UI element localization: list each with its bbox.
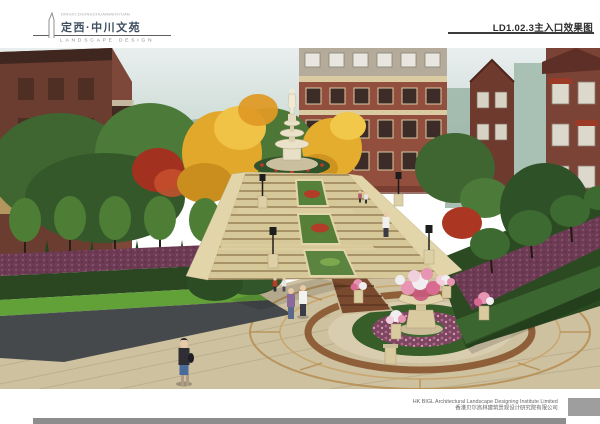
company-credit: HK BIGL Architectural Landscape Designin… <box>413 398 558 411</box>
department-label: LANDSCAPE DESIGN <box>60 37 154 43</box>
presentation-sheet: DINGXI·ZHONGCHUANWENYUAN 定西·中川文苑 LANDSCA… <box>0 0 600 424</box>
sheet-label-divider <box>448 32 594 34</box>
footer-gray-bar <box>33 418 566 424</box>
tower-logo-icon <box>45 11 59 39</box>
project-tagline: DINGXI·ZHONGCHUANWENYUAN <box>61 12 130 17</box>
entrance-rendering <box>0 48 600 389</box>
company-name-zh: 香港贝尔高林建筑景观设计研究院有限公司 <box>413 405 558 412</box>
footer-gray-block <box>568 398 600 416</box>
rendering-image <box>0 48 600 389</box>
project-title: 定西·中川文苑 <box>61 19 141 35</box>
